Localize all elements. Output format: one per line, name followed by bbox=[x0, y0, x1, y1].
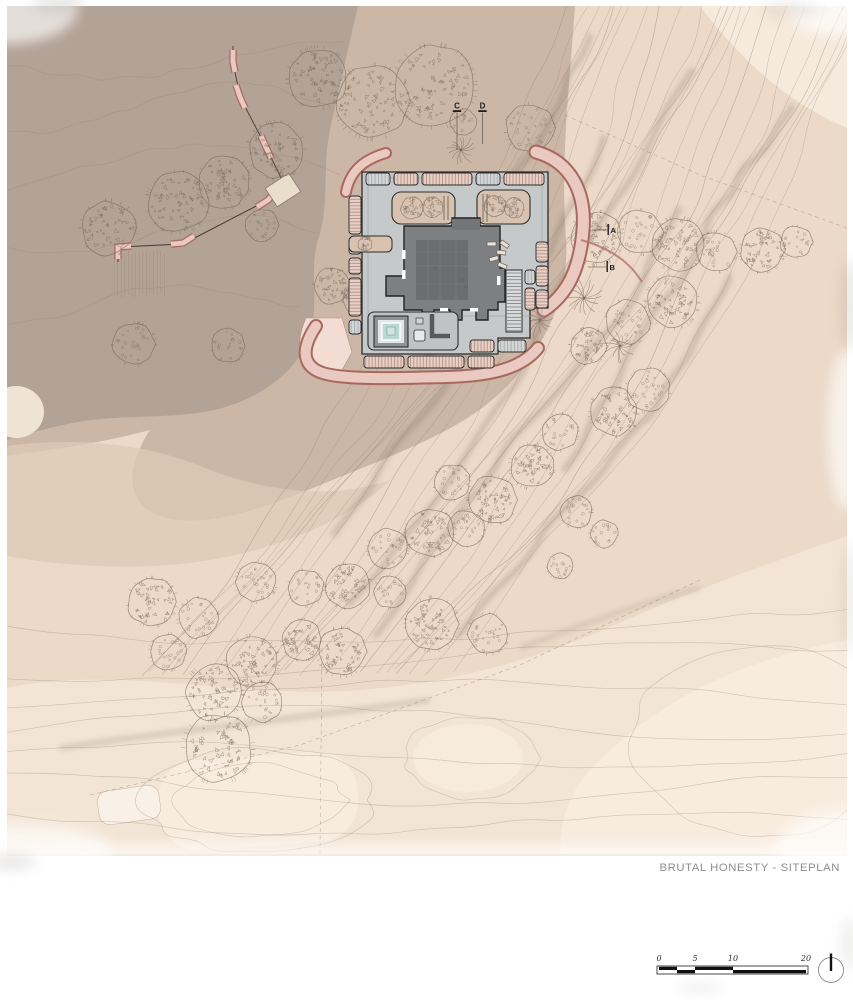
planter bbox=[504, 173, 544, 185]
circle bbox=[583, 297, 585, 299]
roof-core bbox=[416, 240, 468, 300]
planter bbox=[476, 173, 500, 185]
pool-small-box bbox=[416, 318, 423, 324]
furniture bbox=[487, 242, 496, 246]
furniture bbox=[497, 250, 506, 255]
rect bbox=[470, 308, 478, 312]
rect bbox=[402, 270, 406, 279]
scale-bar: 0 5 10 20 bbox=[656, 954, 811, 974]
planter bbox=[536, 266, 548, 286]
pool-center bbox=[387, 327, 395, 335]
rect bbox=[402, 250, 406, 259]
map-canvas: C D A B bbox=[0, 0, 853, 890]
section-tick-b bbox=[607, 261, 608, 272]
scale-seg-4 bbox=[733, 970, 806, 973]
scale-label-20: 20 bbox=[800, 954, 811, 963]
bottom-fade bbox=[0, 846, 853, 858]
planter bbox=[525, 288, 535, 310]
north-indicator bbox=[819, 954, 844, 983]
planter bbox=[422, 173, 472, 185]
roof-tower bbox=[452, 219, 480, 230]
circle bbox=[619, 345, 621, 347]
circle bbox=[460, 149, 462, 151]
scale-seg-3 bbox=[695, 967, 733, 970]
siteplan-drawing: C D A B BRUTAL HONESTY - SITEPLAN 0 5 10… bbox=[0, 0, 853, 1000]
watercolor-smudge bbox=[678, 982, 722, 994]
rect bbox=[497, 276, 501, 285]
section-label-c: C bbox=[454, 102, 460, 111]
path-ramp bbox=[233, 50, 235, 72]
pool-side-pad bbox=[414, 330, 425, 341]
scale-label-0: 0 bbox=[656, 954, 661, 963]
terrain-patch bbox=[413, 724, 523, 792]
scale-seg-1 bbox=[659, 967, 677, 970]
planter bbox=[525, 270, 535, 284]
rect bbox=[440, 308, 448, 312]
planter bbox=[349, 258, 361, 274]
drawing-title: BRUTAL HONESTY - SITEPLAN bbox=[659, 862, 840, 874]
courtyard-small bbox=[349, 236, 392, 252]
watercolor-smudge bbox=[760, 2, 820, 18]
scale-seg-2 bbox=[677, 970, 695, 973]
watercolor-smudge bbox=[841, 918, 853, 970]
scale-label-5: 5 bbox=[692, 954, 697, 963]
planter bbox=[349, 278, 361, 316]
planter bbox=[536, 290, 548, 308]
planter bbox=[470, 340, 494, 352]
planter bbox=[468, 356, 494, 368]
stairs bbox=[506, 270, 522, 332]
planter bbox=[394, 173, 418, 185]
section-label-d: D bbox=[480, 102, 486, 111]
planter bbox=[498, 340, 526, 352]
planter bbox=[349, 196, 361, 234]
watercolor-smudge bbox=[0, 854, 36, 870]
scale-label-10: 10 bbox=[728, 954, 738, 963]
circle bbox=[539, 319, 541, 321]
section-label-b: B bbox=[610, 263, 616, 272]
planter bbox=[364, 356, 404, 368]
section-label-a: A bbox=[611, 226, 617, 235]
planter bbox=[536, 242, 548, 262]
planter bbox=[349, 320, 361, 334]
siteplan-page: C D A B BRUTAL HONESTY - SITEPLAN 0 5 10… bbox=[0, 0, 853, 1000]
planter bbox=[408, 356, 464, 368]
section-tick-a bbox=[608, 224, 609, 235]
planter bbox=[366, 173, 390, 185]
